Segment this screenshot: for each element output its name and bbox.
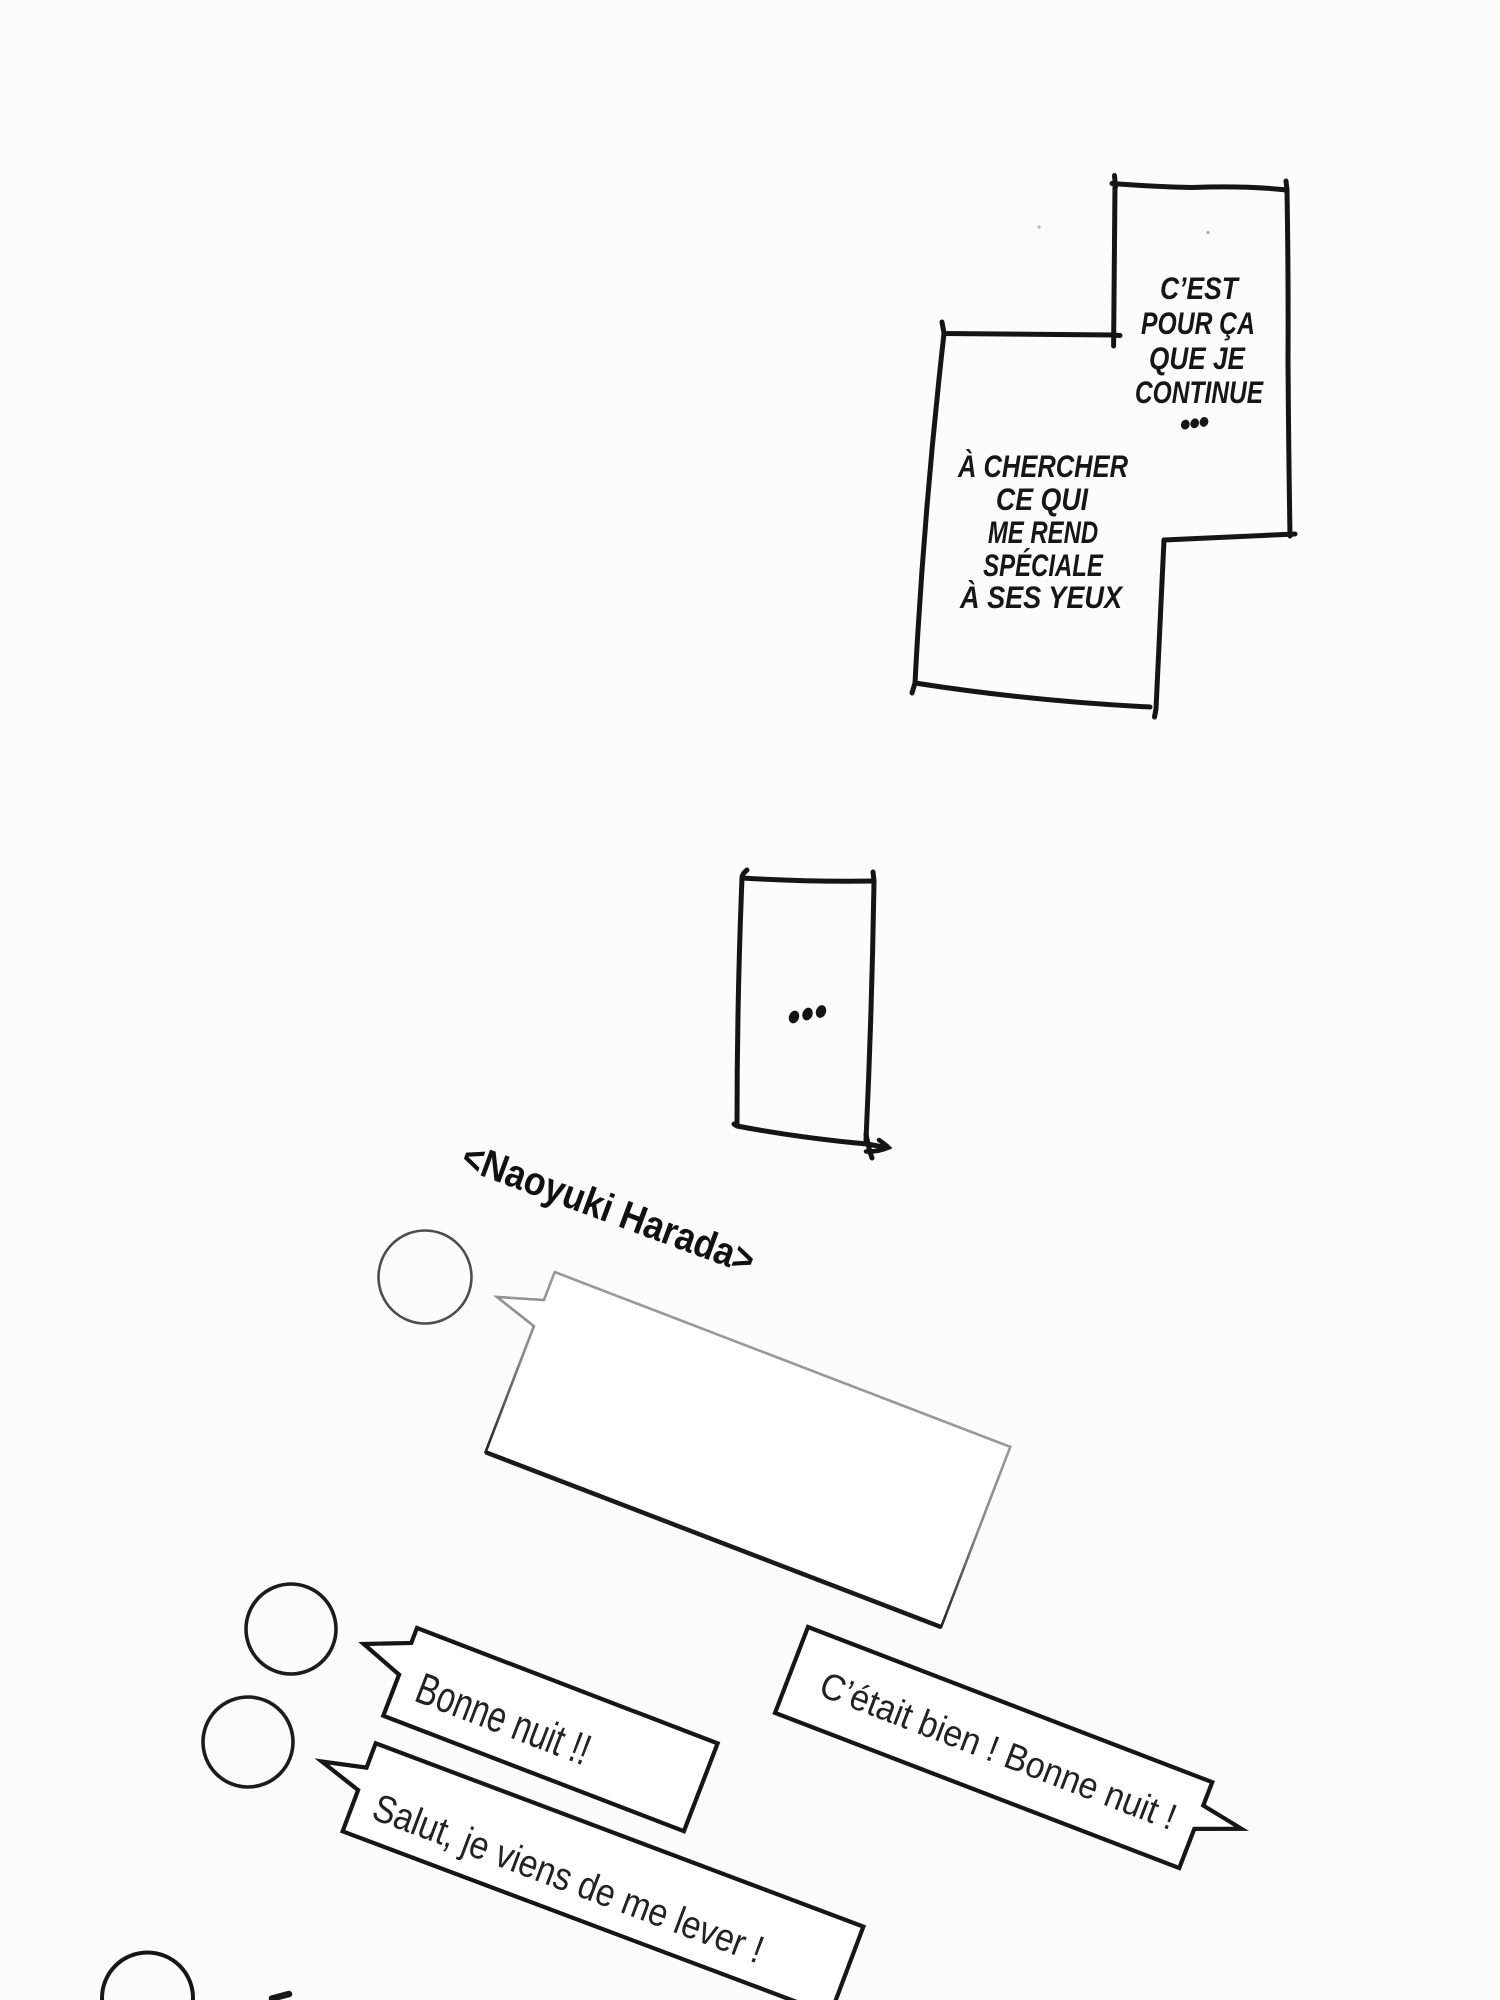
svg-text:À CHERCHER: À CHERCHER <box>957 447 1128 484</box>
svg-text:POUR ÇA: POUR ÇA <box>1141 305 1255 341</box>
svg-text:SPÉCIALE: SPÉCIALE <box>983 548 1104 583</box>
svg-text:QUE JE: QUE JE <box>1149 342 1246 377</box>
svg-text:CE QUI: CE QUI <box>996 483 1089 517</box>
svg-text:C’EST: C’EST <box>1160 272 1240 307</box>
svg-text:À SES YEUX: À SES YEUX <box>959 579 1124 615</box>
svg-text:ME REND: ME REND <box>988 515 1098 550</box>
svg-text:CONTINUE: CONTINUE <box>1135 374 1264 410</box>
